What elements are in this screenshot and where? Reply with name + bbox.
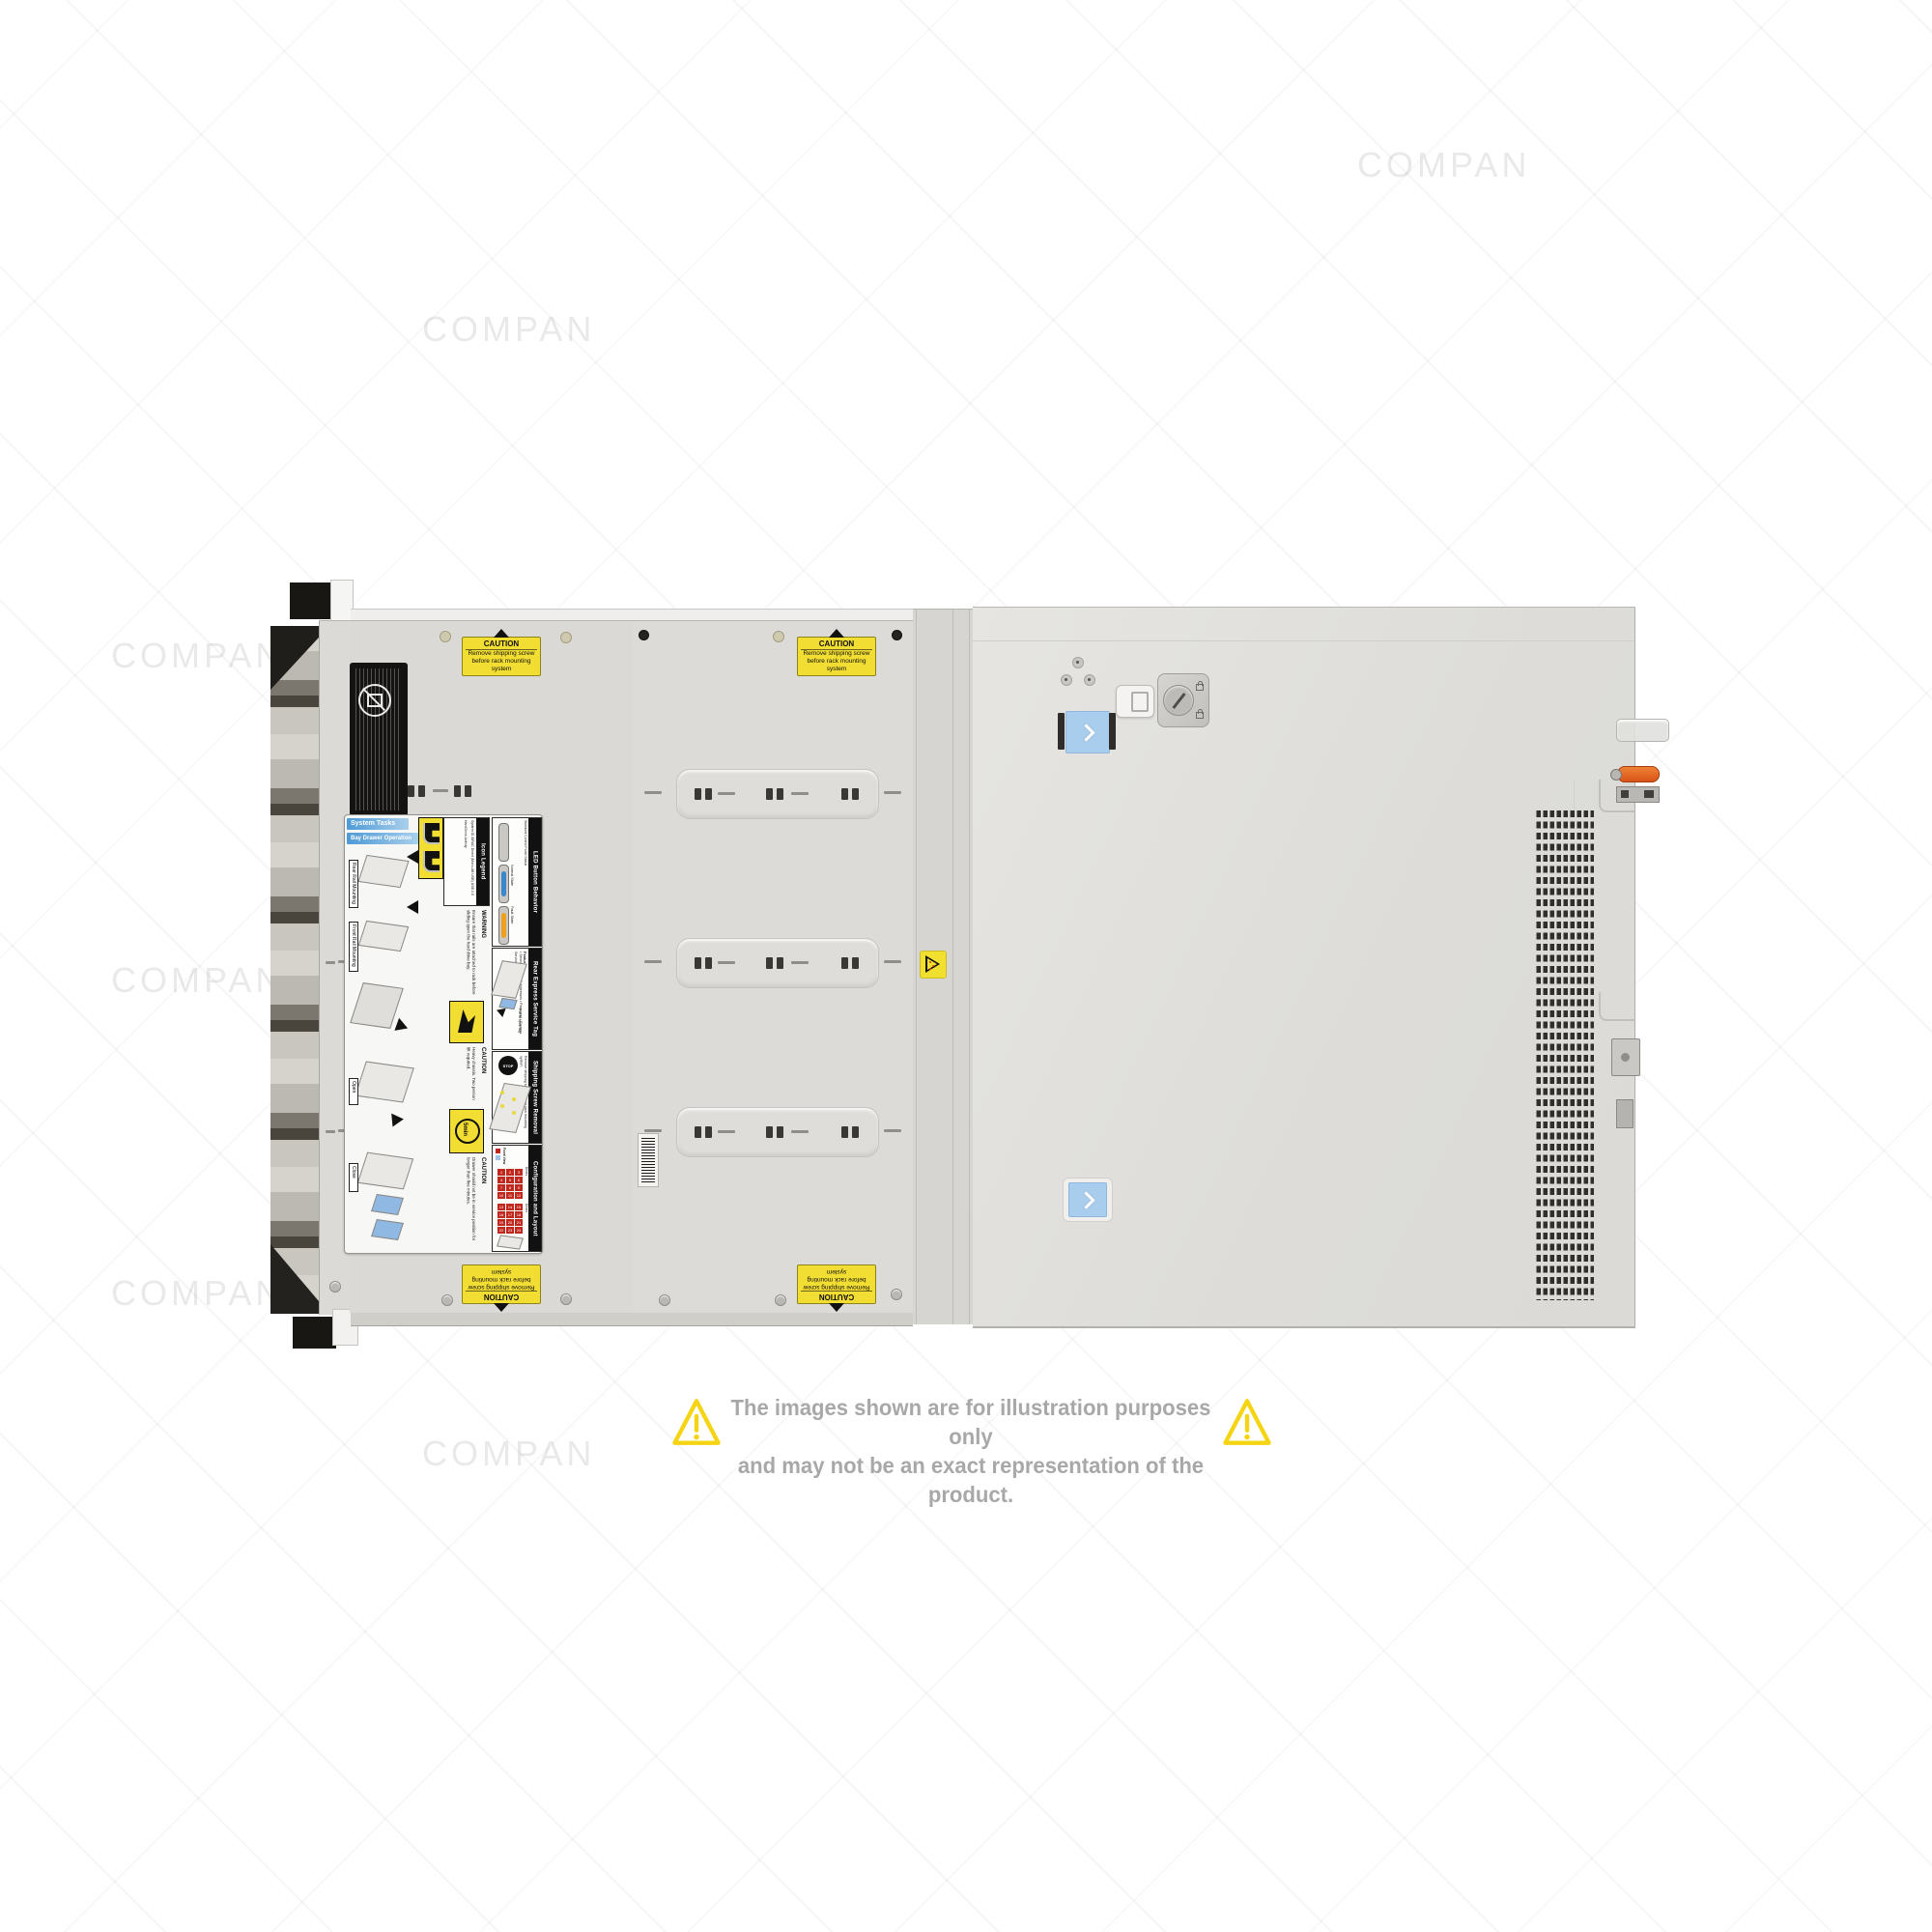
warning-dot xyxy=(929,961,931,963)
drive-bay-cell: 23 xyxy=(506,1227,514,1234)
hinge-seam xyxy=(969,610,970,1324)
caution-heavy-strip: CAUTION Heavy chassis. Two person lift r… xyxy=(443,1045,488,1105)
caution-title: CAUTION xyxy=(801,639,872,650)
drive-bay-cell: 5 xyxy=(506,1177,514,1183)
drive-bay-cell: 1 xyxy=(497,1169,505,1176)
layout-drawing xyxy=(497,1235,524,1249)
caution-title: CAUTION xyxy=(480,1047,486,1073)
vent-slots xyxy=(841,788,859,800)
screw-hole xyxy=(773,631,784,642)
bay2-label: Bay 2: 3.5" x12 Hard Drives xyxy=(525,1204,532,1238)
vent-slots xyxy=(695,788,712,800)
vent-dash xyxy=(718,1130,735,1133)
latch-rail xyxy=(1109,713,1116,750)
vent-dash xyxy=(433,789,448,792)
hinge-warning-label xyxy=(920,951,947,979)
stop-icon: STOP xyxy=(498,1056,518,1075)
mini-diagram-blue xyxy=(371,1219,404,1240)
pointer-arrow xyxy=(386,1114,404,1130)
screw-hole xyxy=(892,630,902,640)
drive-bay-cell: 18 xyxy=(515,1211,523,1218)
drive-bay-cell: 10 xyxy=(497,1192,505,1199)
step-tag: Front Rail Mounting xyxy=(349,922,358,972)
lid-notch xyxy=(1599,992,1635,1021)
caution-title: CAUTION xyxy=(480,1157,486,1183)
vent-dash xyxy=(718,961,735,964)
release-handle xyxy=(1616,719,1669,742)
vent-slots xyxy=(766,1126,783,1138)
warning-dot xyxy=(932,965,934,967)
vent-slots xyxy=(766,788,783,800)
mini-diagram-blue xyxy=(371,1194,404,1215)
vent-dash xyxy=(718,792,735,795)
drive-bay-cell: 13 xyxy=(497,1204,505,1210)
unlocked-icon xyxy=(1196,684,1204,691)
recessed-handle xyxy=(676,769,879,819)
led-bar-fault xyxy=(498,906,509,945)
metal-latch-bottom xyxy=(1611,1038,1640,1076)
vent-slots xyxy=(454,785,471,797)
five-minute-label: 5min xyxy=(449,1109,484,1153)
hinge-seam xyxy=(952,610,953,1324)
service-tag-title: Rear Express Service Tag xyxy=(528,949,541,1049)
edge-screw xyxy=(329,1281,341,1293)
disclaimer-text: The images shown are for illustration pu… xyxy=(729,1393,1211,1509)
vent-slots xyxy=(695,957,712,969)
vent-dash xyxy=(884,791,901,794)
locked-icon xyxy=(1196,712,1204,719)
caution-sticker-bottom-left: CAUTION Remove shipping screw before rac… xyxy=(462,1264,541,1304)
caution-sticker-top-left: CAUTION Remove shipping screw before rac… xyxy=(462,637,541,676)
orange-latch-lever xyxy=(1617,766,1660,782)
configuration-box: Configuration and Layout Front View 1234… xyxy=(492,1145,542,1252)
recessed-handle xyxy=(676,938,879,988)
drive-bay-cell: 22 xyxy=(497,1227,505,1234)
icon-legend-box: Icon Legend System ID iDRAC Direct (Micr… xyxy=(443,817,490,906)
watermark-text: COMPAN xyxy=(1357,145,1530,185)
drive-bay-cell: 19 xyxy=(497,1219,505,1226)
lid-release-button-bottom xyxy=(1068,1182,1107,1217)
caution-line: before rack mounting system xyxy=(801,1267,872,1283)
clock-icon xyxy=(455,1119,480,1144)
caution-line: before rack mounting system xyxy=(466,1267,537,1283)
service-tag-box: Rear Express Service Tag Features: • Ser… xyxy=(492,948,542,1050)
do-not-stack-icon xyxy=(358,684,391,717)
drive-bay-cell: 21 xyxy=(515,1219,523,1226)
vent-dash xyxy=(884,1129,901,1132)
disclaimer-line-1: The images shown are for illustration pu… xyxy=(729,1393,1211,1451)
lock-dial xyxy=(1163,685,1194,716)
warning-dot xyxy=(929,968,931,970)
drive-bay-cell: 6 xyxy=(515,1177,523,1183)
drive-bay-cell: 9 xyxy=(515,1184,523,1191)
warning-triangle-icon xyxy=(671,1395,722,1449)
server-top-view: CAUTION Remove shipping screw before rac… xyxy=(270,580,1669,1350)
vent-dash xyxy=(644,1129,662,1132)
screw-hole xyxy=(639,630,649,640)
warning-strip: WARNING Ensure that rails are attached t… xyxy=(443,908,488,997)
drive-bay-cell: 3 xyxy=(515,1169,523,1176)
rail-drawing xyxy=(357,855,409,888)
step-tag: Open xyxy=(349,1078,358,1105)
bay1-label: Bay 1: 3.5" x12 Hard Drives xyxy=(525,1167,532,1202)
front-bezel-zigzag xyxy=(270,626,319,1314)
panel-screw xyxy=(560,1293,572,1305)
metal-tab xyxy=(1616,1099,1634,1128)
regulatory-label xyxy=(350,663,408,816)
icon-legend-items: System ID iDRAC Direct (Micro-AB USB) US… xyxy=(446,820,475,901)
warning-title: WARNING xyxy=(480,910,486,938)
edge-vent-dash xyxy=(326,1130,335,1133)
warning-triangle-icon xyxy=(1222,1395,1272,1449)
screw-hole xyxy=(440,631,451,642)
screw-dot xyxy=(500,1091,504,1094)
rack-ear-bottom xyxy=(293,1317,336,1349)
led-fault-label: Fault State xyxy=(510,906,514,945)
vent-dash xyxy=(644,960,662,963)
recessed-handle xyxy=(676,1107,879,1157)
step-illustration-close: Close xyxy=(347,1150,414,1248)
lid-rivet xyxy=(1072,657,1084,668)
disclaimer-line-2: and may not be an exact representation o… xyxy=(729,1451,1211,1509)
lid-rivet xyxy=(1084,674,1095,686)
shipping-screw-box: Shipping Screw Removal STOP Remove shipp… xyxy=(492,1051,542,1144)
label-header-system-tasks: System Tasks xyxy=(347,818,409,830)
screwdriver-slot-icon xyxy=(1172,693,1185,709)
tip-hazard-label xyxy=(449,1001,484,1043)
keylock xyxy=(1157,673,1209,727)
vent-dash xyxy=(791,1130,809,1133)
pinch-hazard-label xyxy=(418,817,443,879)
screw-hole xyxy=(560,632,572,643)
step-illustration-open: Open xyxy=(347,1053,414,1146)
bay1-grid: 123456789101112 xyxy=(497,1169,523,1199)
service-info-label: System Tasks Bay Drawer Operation Rear R… xyxy=(344,814,543,1254)
rack-ear-top xyxy=(290,582,335,619)
caution-sticker-bottom-middle: CAUTION Remove shipping screw before rac… xyxy=(797,1264,876,1304)
exhaust-vent-grid xyxy=(1534,810,1594,1300)
drawer-drawing xyxy=(357,1152,413,1190)
pointer-arrow xyxy=(495,1006,505,1017)
five-min-text: 5min xyxy=(462,1122,468,1136)
caution-line: Remove shipping screw xyxy=(466,1283,537,1291)
watermark-text: COMPAN xyxy=(422,309,595,350)
caution-line: before rack mounting system xyxy=(801,658,872,673)
drive-bay-cell: 2 xyxy=(506,1169,514,1176)
panel-screw xyxy=(775,1294,786,1306)
drive-bay-cell: 4 xyxy=(497,1177,505,1183)
panel-screw xyxy=(659,1294,670,1306)
vent-slots xyxy=(841,1126,859,1138)
hinge-seam xyxy=(916,610,917,1324)
caution-line: before rack mounting system xyxy=(466,658,537,673)
hand-pinch-icon xyxy=(423,851,440,872)
caution-title: CAUTION xyxy=(466,639,537,650)
step-illustration-cage xyxy=(347,978,414,1049)
lid-release-button-top xyxy=(1065,711,1110,753)
vent-slots xyxy=(766,957,783,969)
vent-dash xyxy=(644,791,662,794)
caution-line: Remove shipping screw xyxy=(801,1283,872,1291)
vent-dash xyxy=(884,960,901,963)
step-tag: Close xyxy=(349,1163,358,1192)
lid-seam xyxy=(973,640,1634,641)
drive-bay-cell: 17 xyxy=(506,1211,514,1218)
drawer-panel-left: CAUTION Remove shipping screw before rac… xyxy=(350,620,634,1313)
label-header-bay-drawer: Bay Drawer Operation xyxy=(347,833,418,844)
led-bar-normal xyxy=(498,865,509,903)
caution-text: Heavy chassis. Two person lift required. xyxy=(449,1047,476,1103)
vent-slots xyxy=(695,1126,712,1138)
watermark-text: COMPAN xyxy=(111,960,284,1001)
vent-slots xyxy=(408,785,425,797)
service-tag-note: Pull to open tag xyxy=(518,1009,522,1043)
hinge-strip xyxy=(913,609,973,1324)
drive-bay-cell: 16 xyxy=(497,1211,505,1218)
step-tag: Rear Rail Mounting xyxy=(349,860,358,908)
drive-bay-cell: 7 xyxy=(497,1184,505,1191)
icon-legend-title: Icon Legend xyxy=(476,818,489,905)
watermark-text: COMPAN xyxy=(422,1434,595,1474)
hand-pinch-icon xyxy=(423,823,440,844)
bay2-grid: 131415161718192021222324 xyxy=(497,1204,523,1234)
caution-sticker-top-middle: CAUTION Remove shipping screw before rac… xyxy=(797,637,876,676)
led-bar-off xyxy=(498,823,509,862)
drive-bay-cell: 15 xyxy=(515,1204,523,1210)
metal-latch-top xyxy=(1616,786,1660,803)
drive-bay-cell: 11 xyxy=(506,1192,514,1199)
drive-bay-cell: 20 xyxy=(506,1219,514,1226)
caution-drawer-strip: CAUTION Drawer should not be in service … xyxy=(443,1155,488,1250)
hot-swap-legend-square xyxy=(496,1149,500,1153)
step-illustration-rear-rail: Rear Rail Mounting xyxy=(347,850,414,910)
edge-vent-dash xyxy=(326,961,335,964)
caution-line: Remove shipping screw xyxy=(466,650,537,658)
watermark-text: COMPAN xyxy=(111,636,284,676)
latch-rail xyxy=(1058,713,1065,750)
lid-panel xyxy=(973,607,1635,1328)
vent-dash xyxy=(791,792,809,795)
chevron-right-icon xyxy=(1077,724,1094,741)
drive-bay-cell: 24 xyxy=(515,1227,523,1234)
shipping-screw-title: Shipping Screw Removal xyxy=(528,1052,541,1143)
drawer-drawing xyxy=(355,1061,414,1102)
vent-slots xyxy=(841,957,859,969)
lid-rivet xyxy=(1061,674,1072,686)
drive-bay-cell: 8 xyxy=(506,1184,514,1191)
caution-title: CAUTION xyxy=(801,1291,872,1301)
led-normal-label: Normal State xyxy=(510,865,514,903)
vent-dash xyxy=(791,961,809,964)
barcode-sticker xyxy=(638,1133,659,1187)
tip-hazard-icon xyxy=(458,1009,475,1033)
release-slider xyxy=(1116,685,1154,718)
product-photo-canvas: COMPANCOMPANCOMPANCOMPANCOMPANCOMPANCOMP… xyxy=(0,0,1932,1932)
drive-bay-cell: 14 xyxy=(506,1204,514,1210)
panel-screw xyxy=(891,1289,902,1300)
drive-bay-cell: 12 xyxy=(515,1192,523,1199)
chevron-right-icon xyxy=(1077,1191,1094,1208)
watermark-text: COMPAN xyxy=(111,1273,284,1314)
step-illustration-front-rail: Front Rail Mounting xyxy=(347,914,414,974)
warning-triangle-right-icon xyxy=(925,955,940,973)
caution-line: Remove shipping screw xyxy=(801,650,872,658)
drawer-panel-middle: CAUTION Remove shipping screw before rac… xyxy=(633,620,914,1313)
led-behavior-subtitle: Standard Control Panel Status xyxy=(524,820,527,942)
panel-screw xyxy=(441,1294,453,1306)
led-behavior-box: LED Button Behavior Standard Control Pan… xyxy=(492,817,542,947)
caution-title: CAUTION xyxy=(466,1291,537,1301)
led-behavior-title: LED Button Behavior xyxy=(528,818,541,946)
cold-swap-legend-square xyxy=(496,1155,500,1160)
caution-text: Drawer should not be in service position… xyxy=(449,1157,476,1248)
warning-text: Ensure that rails are attached to rack b… xyxy=(447,910,476,995)
rail-drawing xyxy=(358,921,409,952)
front-view-label: Front View xyxy=(502,1148,506,1167)
